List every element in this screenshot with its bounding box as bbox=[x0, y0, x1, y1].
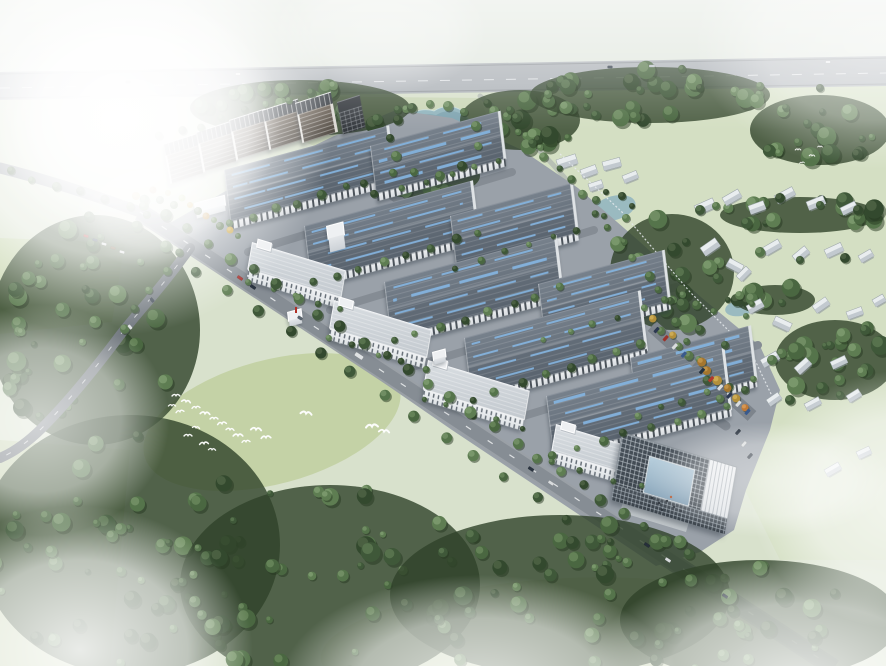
tree-line bbox=[452, 227, 581, 272]
garden-shrub bbox=[179, 195, 186, 202]
tree bbox=[452, 266, 459, 273]
tree bbox=[661, 296, 669, 304]
tree-highlight bbox=[399, 185, 403, 189]
tree-highlight bbox=[861, 326, 867, 332]
tree-highlight bbox=[423, 366, 427, 370]
tree bbox=[515, 129, 522, 136]
tree bbox=[501, 248, 508, 256]
bird bbox=[366, 424, 378, 427]
tree-highlight bbox=[724, 403, 728, 407]
garden-shrub bbox=[156, 196, 164, 204]
tree bbox=[317, 190, 328, 201]
tree bbox=[678, 398, 687, 407]
tree-highlight bbox=[541, 337, 544, 340]
car bbox=[101, 242, 106, 246]
tree bbox=[640, 522, 649, 532]
tree bbox=[315, 301, 322, 308]
tree bbox=[391, 151, 402, 163]
tree bbox=[145, 286, 154, 295]
person-dot bbox=[661, 509, 663, 511]
tree-highlight bbox=[655, 287, 659, 291]
car bbox=[83, 234, 88, 238]
tree bbox=[629, 203, 636, 210]
tree-highlight bbox=[768, 356, 774, 362]
bird bbox=[242, 440, 250, 442]
bird bbox=[226, 428, 234, 430]
garden-shrub bbox=[216, 222, 224, 230]
tree bbox=[100, 195, 110, 205]
tree-highlight bbox=[670, 332, 674, 336]
tree-highlight bbox=[588, 355, 593, 360]
tree-line bbox=[661, 296, 725, 404]
bird bbox=[795, 149, 801, 150]
tree-line bbox=[140, 195, 696, 561]
tree bbox=[574, 445, 581, 452]
tree-highlight bbox=[635, 413, 639, 417]
tree bbox=[860, 325, 871, 337]
tree-highlight bbox=[646, 272, 651, 277]
tree-highlight bbox=[603, 189, 606, 192]
tree bbox=[540, 337, 546, 343]
tree-highlight bbox=[294, 294, 300, 300]
tree-highlight bbox=[549, 459, 552, 462]
bird bbox=[300, 411, 311, 415]
tree-highlight bbox=[478, 257, 482, 261]
signpost bbox=[295, 307, 297, 313]
tree-highlight bbox=[502, 248, 506, 252]
tree-highlight bbox=[568, 364, 573, 369]
tree bbox=[645, 271, 656, 282]
tree-highlight bbox=[661, 536, 667, 542]
tree-highlight bbox=[519, 378, 524, 383]
tree-highlight bbox=[503, 112, 508, 117]
tree bbox=[578, 190, 588, 200]
tree-highlight bbox=[28, 177, 32, 181]
tree bbox=[542, 370, 551, 379]
tree-highlight bbox=[636, 340, 641, 345]
garden-shrub bbox=[194, 207, 202, 215]
tree-highlight bbox=[310, 278, 314, 282]
shrub-light bbox=[166, 191, 169, 194]
tree-highlight bbox=[53, 182, 58, 187]
tree bbox=[28, 177, 36, 185]
tree-highlight bbox=[226, 220, 230, 224]
tree-highlight bbox=[472, 122, 478, 128]
tree bbox=[52, 182, 62, 193]
tree-highlight bbox=[490, 388, 495, 393]
bird bbox=[208, 448, 215, 450]
tree bbox=[695, 205, 706, 217]
tree bbox=[683, 338, 691, 346]
tree bbox=[344, 366, 357, 379]
garden-shrub bbox=[132, 192, 140, 200]
tree bbox=[155, 131, 164, 140]
tree-highlight bbox=[548, 452, 553, 457]
tree-highlight bbox=[442, 433, 448, 439]
tree bbox=[674, 418, 682, 426]
tree-highlight bbox=[445, 392, 451, 398]
tree bbox=[723, 403, 731, 411]
tree bbox=[557, 165, 564, 172]
tree-highlight bbox=[253, 306, 259, 312]
tree-line bbox=[7, 166, 136, 212]
tree bbox=[457, 161, 468, 173]
tree-highlight bbox=[545, 90, 549, 94]
tree-highlight bbox=[226, 254, 233, 261]
tree-highlight bbox=[155, 132, 159, 136]
tree-highlight bbox=[484, 100, 488, 104]
tree-highlight bbox=[613, 348, 617, 352]
tree-highlight bbox=[198, 124, 202, 128]
tree-highlight bbox=[514, 439, 520, 445]
tree bbox=[636, 339, 647, 350]
shrub-light bbox=[128, 203, 131, 206]
tree bbox=[450, 171, 456, 177]
tree bbox=[513, 438, 525, 450]
tree bbox=[411, 330, 418, 337]
tree-line bbox=[155, 81, 339, 141]
tree-highlight bbox=[577, 467, 580, 470]
tree bbox=[573, 227, 581, 235]
tree-highlight bbox=[724, 385, 728, 389]
tree-line bbox=[483, 99, 563, 172]
tree bbox=[204, 239, 214, 249]
tree bbox=[750, 376, 757, 384]
tree bbox=[329, 81, 339, 91]
tree bbox=[551, 234, 557, 240]
tree-highlight bbox=[817, 201, 821, 205]
tree bbox=[471, 164, 478, 171]
tree bbox=[285, 97, 293, 105]
tree-line bbox=[567, 175, 662, 294]
bird bbox=[192, 406, 200, 408]
tree-highlight bbox=[722, 341, 726, 345]
tree bbox=[649, 315, 658, 324]
tree bbox=[160, 209, 173, 223]
bird bbox=[261, 436, 271, 439]
tree bbox=[612, 348, 621, 357]
tree-highlight bbox=[315, 301, 318, 304]
tree bbox=[426, 100, 435, 109]
tree bbox=[423, 379, 435, 391]
tree bbox=[669, 332, 677, 340]
tree bbox=[403, 364, 416, 377]
tree-highlight bbox=[675, 418, 679, 422]
tree-highlight bbox=[797, 256, 801, 260]
person-dot bbox=[680, 510, 682, 512]
tree bbox=[528, 139, 537, 149]
tree-highlight bbox=[472, 164, 475, 167]
tree-highlight bbox=[649, 315, 653, 319]
shrub-light bbox=[140, 202, 145, 207]
tree bbox=[360, 179, 369, 188]
tree-highlight bbox=[659, 579, 664, 584]
shrub-light bbox=[188, 203, 191, 206]
tree-highlight bbox=[218, 115, 222, 119]
tree bbox=[721, 341, 730, 350]
tree-highlight bbox=[132, 221, 138, 227]
tree bbox=[241, 106, 250, 115]
tree-highlight bbox=[697, 84, 701, 88]
tree-highlight bbox=[450, 171, 453, 174]
tree bbox=[423, 366, 431, 374]
tree-highlight bbox=[287, 326, 293, 332]
tree bbox=[471, 121, 482, 133]
tree bbox=[618, 508, 631, 521]
tree bbox=[628, 254, 636, 263]
tree bbox=[443, 101, 454, 113]
tree bbox=[326, 335, 333, 342]
tree-highlight bbox=[725, 297, 728, 300]
tree bbox=[218, 115, 226, 123]
tree-highlight bbox=[176, 249, 180, 253]
tree bbox=[178, 126, 188, 136]
tree bbox=[622, 558, 633, 569]
tree-highlight bbox=[313, 310, 319, 316]
tree-highlight bbox=[335, 321, 341, 327]
tree-highlight bbox=[641, 305, 645, 309]
tree bbox=[407, 103, 418, 115]
tree-highlight bbox=[604, 224, 608, 228]
tree bbox=[474, 230, 481, 238]
tree-highlight bbox=[494, 417, 497, 420]
tree bbox=[682, 238, 691, 247]
tree-highlight bbox=[629, 254, 633, 258]
tree bbox=[130, 305, 140, 315]
tree bbox=[489, 387, 499, 397]
tree-highlight bbox=[475, 230, 479, 234]
tree-highlight bbox=[639, 483, 642, 486]
tree bbox=[655, 286, 663, 294]
tree bbox=[333, 273, 342, 282]
shrub-light bbox=[195, 208, 199, 212]
garden-shrub bbox=[187, 202, 193, 208]
tree bbox=[402, 252, 410, 260]
tree-highlight bbox=[827, 341, 831, 345]
car bbox=[110, 246, 115, 250]
tree bbox=[315, 347, 328, 360]
tree-highlight bbox=[408, 104, 414, 110]
car bbox=[297, 315, 303, 320]
car bbox=[354, 352, 364, 360]
tree bbox=[684, 549, 696, 561]
tree-highlight bbox=[542, 370, 546, 374]
car bbox=[747, 453, 753, 459]
tree-highlight bbox=[716, 395, 721, 400]
tree-highlight bbox=[678, 399, 682, 403]
tree-highlight bbox=[698, 410, 703, 415]
tree bbox=[222, 285, 234, 297]
tree bbox=[526, 242, 532, 248]
bird bbox=[379, 429, 390, 432]
tree-highlight bbox=[837, 391, 841, 395]
tree-line bbox=[120, 248, 185, 335]
tree-highlight bbox=[183, 224, 188, 229]
tree-highlight bbox=[500, 473, 505, 478]
tree-highlight bbox=[307, 89, 312, 94]
bird bbox=[217, 422, 226, 425]
garden-shrub bbox=[203, 213, 210, 220]
tree-highlight bbox=[436, 172, 442, 178]
tree bbox=[76, 187, 86, 197]
bird bbox=[199, 442, 208, 445]
bird bbox=[251, 428, 262, 431]
person-dot bbox=[648, 505, 650, 507]
garden-shrub bbox=[211, 217, 217, 223]
tree-highlight bbox=[662, 297, 666, 301]
bird bbox=[168, 405, 175, 406]
tree-highlight bbox=[841, 254, 847, 260]
tree-highlight bbox=[223, 285, 229, 291]
tree bbox=[225, 253, 238, 267]
tree bbox=[460, 108, 469, 117]
car bbox=[649, 65, 655, 68]
tree bbox=[556, 283, 565, 292]
car bbox=[825, 61, 830, 64]
tree-highlight bbox=[817, 84, 821, 88]
tree bbox=[660, 535, 673, 549]
tree-highlight bbox=[444, 402, 447, 405]
tree bbox=[755, 247, 766, 259]
tree-highlight bbox=[592, 211, 596, 215]
shrub-light bbox=[133, 193, 137, 197]
car bbox=[250, 284, 257, 290]
tree bbox=[857, 367, 868, 379]
tree-highlight bbox=[529, 139, 534, 144]
tree bbox=[567, 175, 576, 185]
tree bbox=[436, 323, 446, 333]
tree-highlight bbox=[551, 234, 554, 237]
tree bbox=[531, 294, 540, 303]
tree-highlight bbox=[355, 266, 359, 270]
tree-highlight bbox=[293, 201, 298, 206]
tree bbox=[386, 134, 395, 143]
tree-highlight bbox=[512, 300, 516, 304]
tree-highlight bbox=[140, 195, 145, 200]
tree-highlight bbox=[595, 495, 602, 502]
tree bbox=[853, 205, 864, 217]
tree-highlight bbox=[507, 106, 511, 110]
tree bbox=[483, 307, 493, 317]
tree bbox=[380, 390, 392, 403]
tree-highlight bbox=[245, 279, 248, 282]
tree-highlight bbox=[580, 481, 585, 486]
tree-highlight bbox=[205, 240, 210, 245]
car bbox=[607, 66, 612, 69]
tree bbox=[422, 397, 428, 403]
tree bbox=[618, 192, 627, 201]
tree-highlight bbox=[424, 180, 427, 183]
tree-highlight bbox=[672, 318, 677, 323]
tree bbox=[592, 196, 601, 205]
tree bbox=[380, 257, 390, 268]
tree-highlight bbox=[458, 162, 464, 168]
tree bbox=[785, 395, 796, 407]
tree bbox=[621, 239, 628, 247]
tree-highlight bbox=[534, 493, 540, 499]
tree-highlight bbox=[161, 210, 167, 216]
tree-highlight bbox=[573, 227, 577, 231]
tree bbox=[533, 492, 545, 504]
tree bbox=[767, 355, 778, 367]
bird bbox=[818, 146, 823, 147]
tree-highlight bbox=[371, 190, 375, 194]
tree bbox=[697, 410, 707, 420]
garden-shrub bbox=[165, 190, 171, 196]
tree-line bbox=[131, 221, 668, 588]
tree bbox=[334, 320, 347, 333]
tree bbox=[532, 454, 543, 465]
tree-highlight bbox=[8, 167, 12, 171]
person-dot bbox=[658, 502, 660, 504]
tree bbox=[599, 436, 610, 447]
tree bbox=[286, 326, 298, 338]
tree-highlight bbox=[540, 153, 545, 158]
tree bbox=[826, 341, 835, 350]
tree-highlight bbox=[427, 100, 431, 104]
garden-shrub bbox=[127, 202, 133, 208]
tree-highlight bbox=[496, 158, 499, 161]
tree-highlight bbox=[411, 168, 415, 172]
tree bbox=[610, 478, 616, 485]
tree bbox=[312, 309, 324, 321]
tree bbox=[562, 515, 572, 526]
tree-highlight bbox=[648, 424, 652, 428]
shrub-light bbox=[212, 218, 215, 221]
tree bbox=[441, 432, 453, 444]
tree bbox=[836, 391, 845, 400]
tree-highlight bbox=[683, 238, 687, 242]
tree-highlight bbox=[470, 397, 474, 401]
tree bbox=[658, 578, 668, 588]
tree bbox=[483, 99, 492, 108]
tree bbox=[712, 202, 721, 211]
bird bbox=[182, 400, 191, 403]
tree-highlight bbox=[361, 180, 365, 184]
tree-highlight bbox=[579, 190, 584, 195]
tree bbox=[696, 84, 705, 93]
tree-line bbox=[548, 403, 731, 461]
tree bbox=[399, 185, 406, 192]
tree-line bbox=[470, 339, 647, 405]
tree bbox=[307, 88, 317, 98]
tree-highlight bbox=[146, 287, 150, 291]
tree-highlight bbox=[387, 134, 391, 138]
tree bbox=[520, 426, 526, 432]
tree-highlight bbox=[713, 376, 718, 381]
tree-highlight bbox=[316, 348, 322, 354]
tree bbox=[489, 421, 501, 433]
tree bbox=[197, 124, 206, 133]
tree bbox=[391, 337, 399, 345]
bird bbox=[172, 394, 180, 396]
tree-highlight bbox=[452, 266, 455, 269]
tree-highlight bbox=[121, 325, 126, 330]
tree bbox=[584, 90, 593, 99]
bird bbox=[233, 434, 243, 436]
tree bbox=[370, 190, 379, 199]
garden-shrub bbox=[150, 187, 157, 194]
tree bbox=[160, 241, 173, 255]
garden-shrub bbox=[170, 201, 178, 209]
tree bbox=[567, 363, 577, 373]
tree bbox=[725, 297, 732, 304]
tree-highlight bbox=[713, 202, 717, 206]
tree bbox=[592, 210, 600, 218]
tree bbox=[756, 82, 765, 91]
tree bbox=[647, 423, 656, 432]
car bbox=[528, 466, 535, 472]
